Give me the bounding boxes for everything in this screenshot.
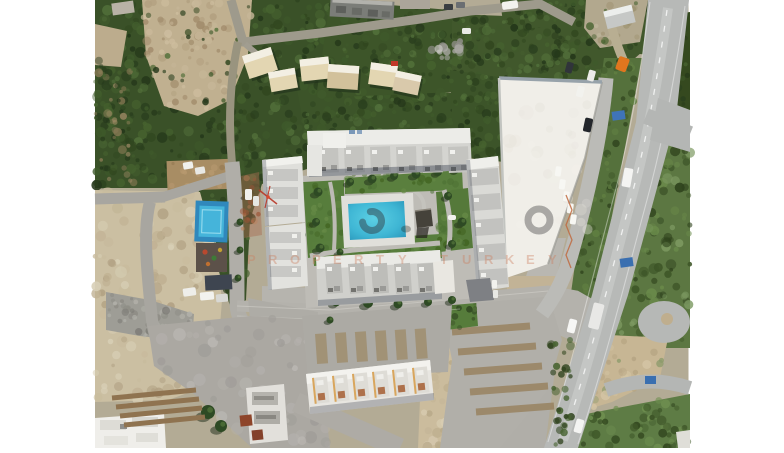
svg-text:P: P <box>312 252 321 267</box>
svg-text:O: O <box>290 252 300 267</box>
svg-text:K: K <box>505 252 515 267</box>
svg-text:R: R <box>354 252 364 267</box>
svg-text:E: E <box>333 252 342 267</box>
svg-text:P: P <box>247 252 256 267</box>
svg-text:T: T <box>376 252 384 267</box>
svg-text:T: T <box>440 252 448 267</box>
svg-text:R: R <box>484 252 494 267</box>
svg-text:Y: Y <box>398 252 407 267</box>
svg-text:E: E <box>526 252 535 267</box>
svg-text:Y: Y <box>548 252 557 267</box>
svg-text:U: U <box>462 252 471 267</box>
svg-text:R: R <box>268 252 278 267</box>
